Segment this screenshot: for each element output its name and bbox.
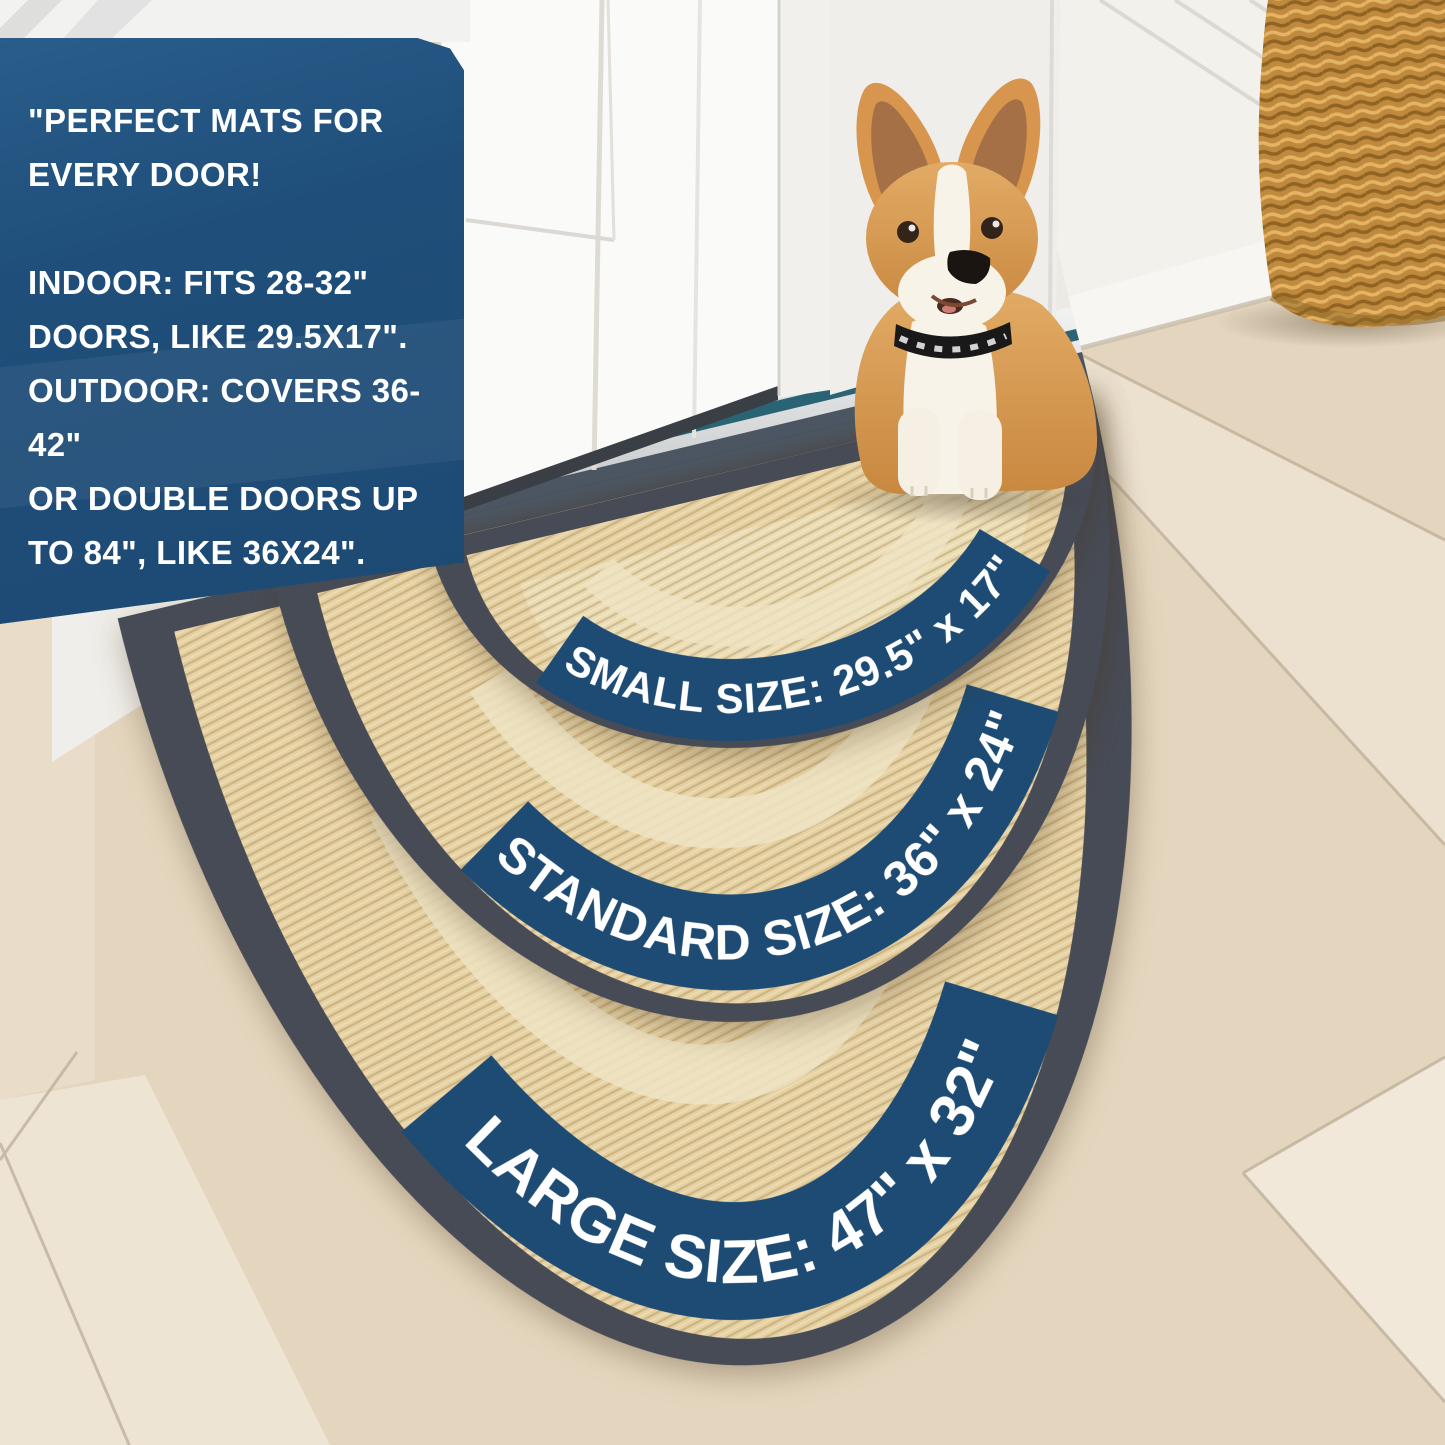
dog-eye-right — [981, 217, 1003, 239]
basket-body — [1259, 0, 1445, 327]
info-box: "PERFECT MATS FOR EVERY DOOR! INDOOR: FI… — [0, 38, 464, 624]
dog-eye-right-glint — [993, 221, 1000, 228]
frame-shadow-line — [1050, 0, 1052, 330]
dog-front-leg-right — [958, 410, 1002, 500]
background-streaks — [0, 0, 470, 42]
dog-eye-left — [897, 221, 919, 243]
door-jamb — [778, 0, 830, 398]
dog-eye-left-glint — [909, 225, 916, 232]
product-image: LARGE SIZE: 47" x 32" STANDARD SIZE: 36"… — [0, 0, 1445, 1445]
dog-front-leg-left — [898, 408, 940, 496]
